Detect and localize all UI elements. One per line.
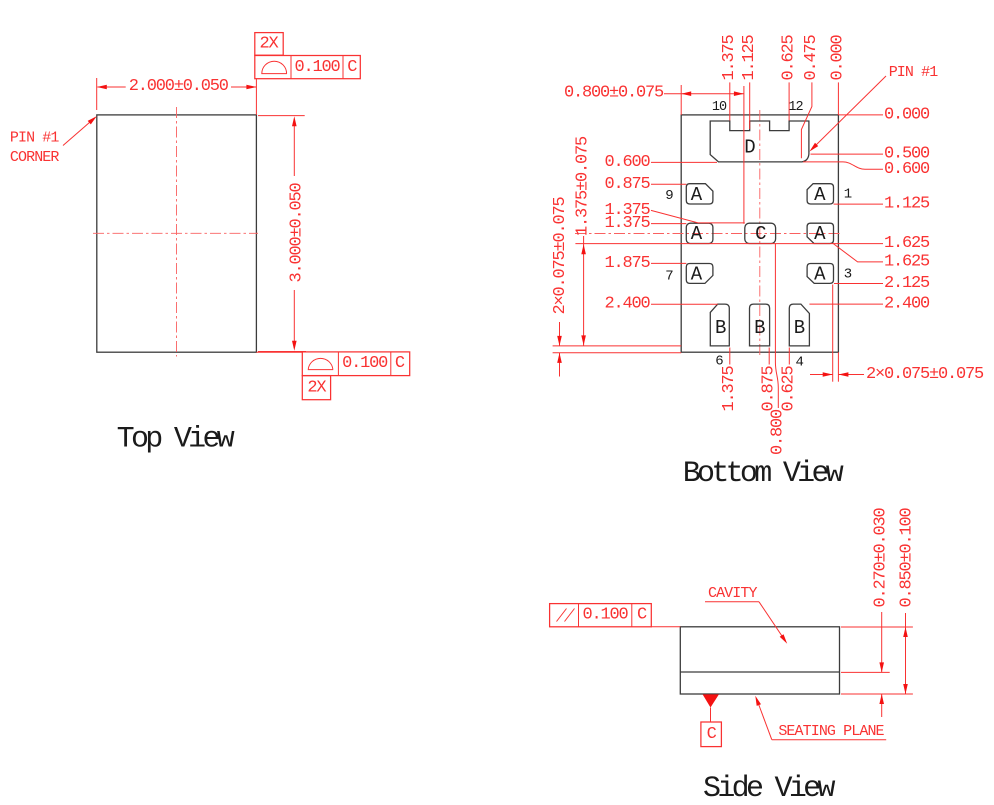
svg-text:A: A bbox=[814, 184, 826, 206]
svg-text:1.375: 1.375 bbox=[604, 214, 650, 233]
svg-text:A: A bbox=[691, 223, 703, 245]
svg-text:1: 1 bbox=[844, 187, 852, 203]
svg-text:B: B bbox=[754, 317, 765, 339]
svg-text:PIN #1: PIN #1 bbox=[889, 64, 939, 81]
svg-text:1.125: 1.125 bbox=[740, 35, 759, 81]
svg-text:C: C bbox=[707, 725, 717, 744]
svg-text:9: 9 bbox=[665, 188, 673, 204]
svg-text:0.850±0.100: 0.850±0.100 bbox=[897, 507, 916, 607]
svg-text:2×0.075±0.075: 2×0.075±0.075 bbox=[551, 196, 570, 314]
svg-text:2X: 2X bbox=[307, 378, 326, 397]
svg-text:CAVITY: CAVITY bbox=[708, 585, 758, 602]
svg-text:B: B bbox=[715, 317, 726, 339]
svg-text:1.375±0.075: 1.375±0.075 bbox=[574, 136, 593, 236]
svg-text:0.875: 0.875 bbox=[759, 366, 778, 412]
svg-text:0.270±0.030: 0.270±0.030 bbox=[872, 507, 891, 607]
svg-text:0.000: 0.000 bbox=[829, 35, 848, 81]
svg-text:2X: 2X bbox=[259, 35, 278, 54]
svg-text:0.875: 0.875 bbox=[604, 175, 650, 194]
svg-text:B: B bbox=[794, 317, 805, 339]
svg-text:Top View: Top View bbox=[117, 423, 235, 457]
svg-text:0.800: 0.800 bbox=[769, 409, 788, 455]
svg-text:C: C bbox=[395, 354, 405, 373]
svg-text:1.125: 1.125 bbox=[884, 195, 930, 214]
svg-text:0.100: 0.100 bbox=[294, 58, 340, 77]
svg-text:0.625: 0.625 bbox=[780, 35, 799, 81]
svg-text:2.125: 2.125 bbox=[884, 274, 930, 293]
svg-text:CORNER: CORNER bbox=[10, 149, 60, 166]
svg-text:Side View: Side View bbox=[703, 772, 835, 805]
svg-text:2×0.075±0.075: 2×0.075±0.075 bbox=[866, 365, 984, 384]
svg-text:0.100: 0.100 bbox=[582, 606, 628, 625]
svg-text:SEATING PLANE: SEATING PLANE bbox=[778, 723, 884, 740]
svg-text:7: 7 bbox=[665, 269, 673, 285]
svg-text:2.400: 2.400 bbox=[604, 295, 650, 314]
svg-text:0.800±0.075: 0.800±0.075 bbox=[564, 84, 664, 103]
svg-text:1.375: 1.375 bbox=[720, 366, 739, 412]
svg-text:0.475: 0.475 bbox=[802, 35, 821, 81]
svg-text:0.625: 0.625 bbox=[779, 366, 798, 412]
svg-text:3: 3 bbox=[844, 267, 852, 283]
svg-text:1.875: 1.875 bbox=[604, 254, 650, 273]
svg-text:1.625: 1.625 bbox=[884, 234, 930, 253]
svg-text:10: 10 bbox=[712, 100, 727, 115]
svg-text:A: A bbox=[691, 184, 703, 206]
svg-text:C: C bbox=[347, 58, 357, 77]
svg-text:A: A bbox=[814, 263, 826, 285]
svg-text:3.000±0.050: 3.000±0.050 bbox=[287, 182, 306, 282]
svg-text:A: A bbox=[691, 263, 703, 285]
svg-text:0.100: 0.100 bbox=[342, 354, 388, 373]
svg-text:Bottom View: Bottom View bbox=[683, 457, 844, 491]
svg-text:2.400: 2.400 bbox=[884, 295, 930, 314]
svg-text:PIN #1: PIN #1 bbox=[10, 130, 60, 147]
svg-text:C: C bbox=[755, 223, 766, 245]
svg-text:1.375: 1.375 bbox=[720, 35, 739, 81]
svg-text:C: C bbox=[637, 606, 647, 625]
svg-text:2.000±0.050: 2.000±0.050 bbox=[129, 77, 229, 96]
svg-text:0.600: 0.600 bbox=[884, 160, 930, 179]
svg-text:D: D bbox=[744, 136, 755, 158]
svg-text:A: A bbox=[814, 223, 826, 245]
svg-text:0.000: 0.000 bbox=[884, 105, 930, 124]
svg-text:1.625: 1.625 bbox=[884, 252, 930, 271]
svg-text:0.600: 0.600 bbox=[604, 153, 650, 172]
svg-text:12: 12 bbox=[788, 100, 803, 115]
